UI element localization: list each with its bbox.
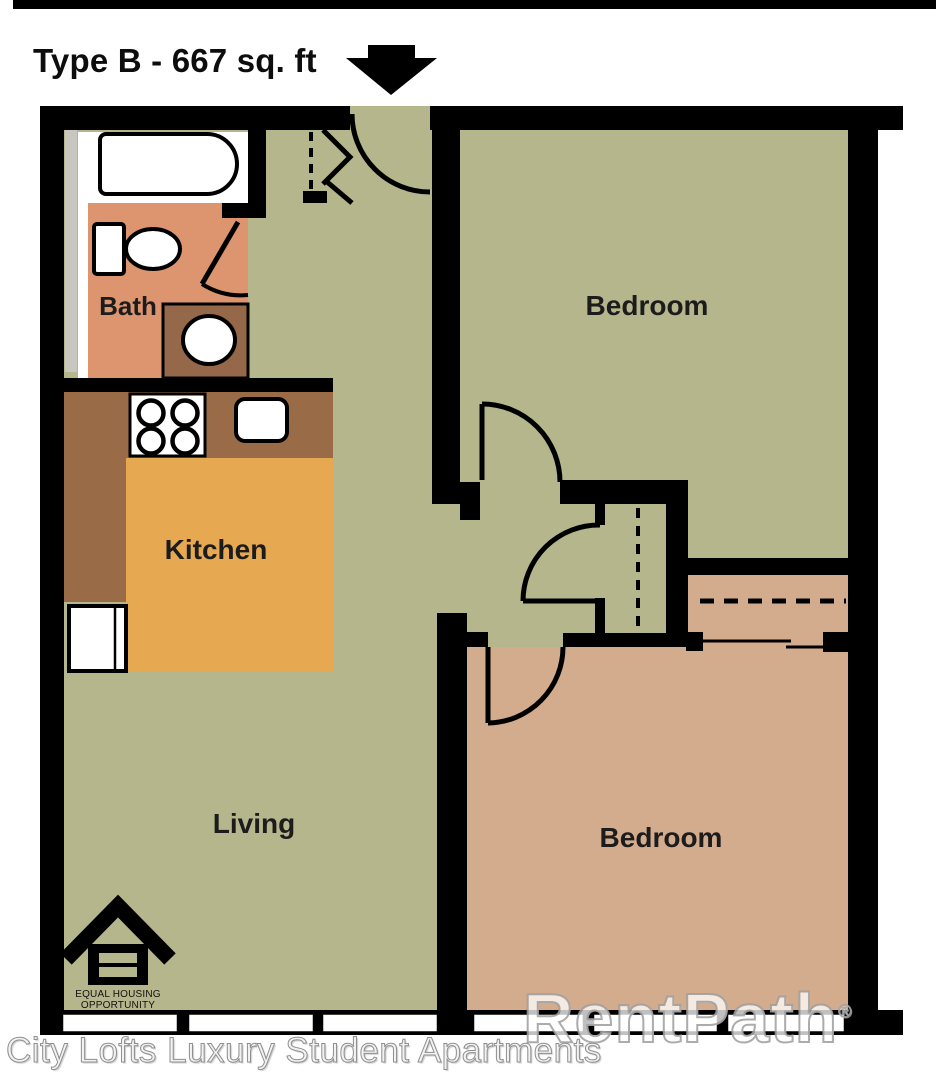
bedroom-top-label: Bedroom [586, 290, 709, 321]
living-label: Living [213, 808, 295, 839]
wall-living-bedroom [437, 613, 467, 1010]
wall-closet-bedroom-divider [688, 558, 848, 575]
sliding-door-end-block [823, 632, 848, 652]
eho-text-line1: EQUAL HOUSING [75, 989, 161, 1000]
eho-equals-bar [99, 953, 137, 963]
wall-bedroom-top-left [432, 106, 460, 504]
wall-top-left [40, 106, 350, 130]
top-border-bar [13, 0, 936, 9]
bedroom-bottom-label: Bedroom [600, 822, 723, 853]
property-caption: City Lofts Luxury Student Apartments [6, 1031, 602, 1071]
window [188, 1014, 314, 1033]
burner-icon [139, 429, 164, 454]
bath-label: Bath [99, 291, 157, 321]
wall-right [848, 106, 878, 1035]
wall-left [40, 106, 64, 1035]
kitchen-label: Kitchen [165, 534, 268, 565]
wall-hall-closet-right [666, 480, 688, 633]
window [593, 1014, 718, 1033]
burner-icon [173, 429, 198, 454]
window [727, 1014, 845, 1033]
eho-text-line2: OPPORTUNITY [81, 1000, 155, 1011]
eho-equals-bar [99, 967, 137, 977]
wall-bath-kitchen [64, 378, 333, 392]
kitchen-sink-icon [236, 399, 287, 441]
burner-icon [139, 401, 164, 426]
burner-icon [173, 401, 198, 426]
door-jamb [460, 482, 480, 520]
page-title: Type B - 667 sq. ft [33, 42, 317, 80]
vanity-sink-icon [183, 316, 235, 364]
wall-hall-closet-left-upper [595, 504, 605, 525]
toilet-tank-icon [94, 224, 124, 274]
entry-arrow-icon [346, 45, 437, 95]
door-jamb [467, 632, 488, 647]
window [62, 1014, 178, 1033]
wall-bath-door-stub [222, 203, 266, 218]
wall-top-right [430, 106, 903, 130]
entry-closet-stub [303, 191, 327, 203]
window [473, 1014, 584, 1033]
kitchen-counter-left [64, 458, 126, 602]
bathtub-icon [100, 134, 237, 194]
toilet-icon [126, 229, 180, 269]
wall-gap [78, 203, 88, 378]
wall-bath-right [248, 106, 266, 205]
floor-plan-page: Bath Kitchen Living Bedroom Bedroom EQUA… [0, 0, 936, 1080]
wall-hall-bottom [563, 633, 688, 647]
eho-house-body-icon [88, 944, 148, 985]
window [322, 1014, 438, 1033]
fridge-icon [69, 606, 126, 671]
kitchen-floor [126, 458, 333, 672]
utility-chase [65, 130, 77, 372]
floor-plan-drawing: Bath Kitchen Living Bedroom Bedroom EQUA… [0, 0, 936, 1080]
